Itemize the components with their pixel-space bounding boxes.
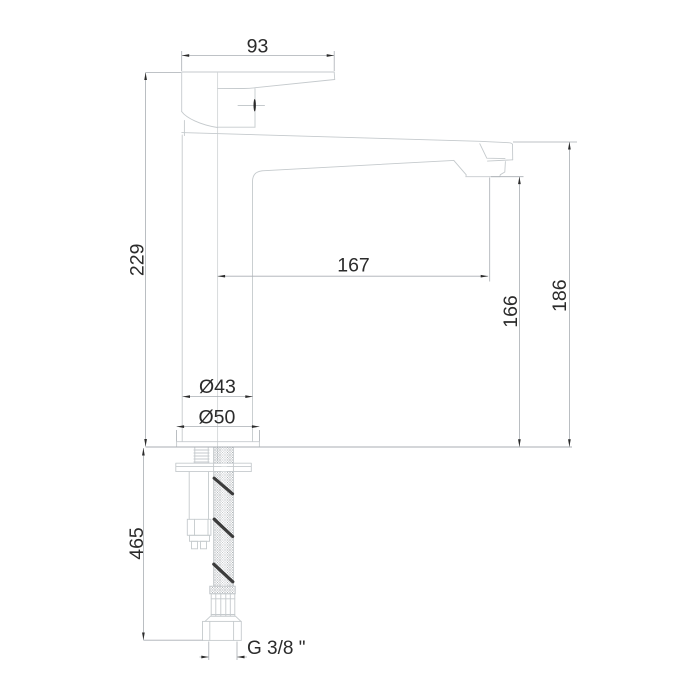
svg-text:Ø50: Ø50 — [199, 406, 236, 428]
svg-text:G 3/8 ": G 3/8 " — [247, 638, 306, 659]
svg-text:465: 465 — [126, 527, 148, 560]
svg-text:167: 167 — [337, 254, 370, 276]
svg-text:229: 229 — [127, 244, 149, 277]
svg-text:93: 93 — [247, 36, 269, 58]
svg-text:166: 166 — [500, 295, 522, 328]
svg-text:Ø43: Ø43 — [199, 376, 236, 398]
svg-text:186: 186 — [549, 279, 571, 312]
